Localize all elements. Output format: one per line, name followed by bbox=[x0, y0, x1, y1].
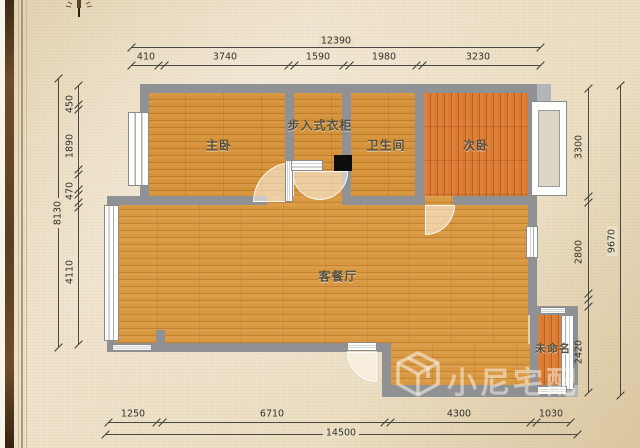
dim-line-bottom-segments bbox=[108, 422, 570, 423]
dim-top-total: 12390 bbox=[318, 36, 354, 47]
window-master-left bbox=[128, 112, 149, 186]
room-label-walk-in-closet: 步入式衣柜 bbox=[287, 117, 352, 134]
wall-bathroom-bedroom-divider bbox=[415, 84, 424, 205]
dim-left-seg-1: 450 bbox=[65, 95, 76, 113]
wall-mid-horizontal-c bbox=[453, 196, 537, 205]
bay-window-panel bbox=[538, 110, 560, 187]
dim-line-left-segments bbox=[78, 85, 79, 345]
column-block bbox=[334, 155, 352, 171]
room-label-second-bedroom: 次卧 bbox=[463, 137, 489, 154]
wall-stub-living bbox=[156, 330, 165, 352]
window-unnamed-top bbox=[540, 307, 566, 314]
door-opening-closet bbox=[291, 160, 323, 171]
dim-right-total: 9670 bbox=[607, 226, 618, 256]
window-living-left bbox=[104, 205, 119, 341]
dim-right-seg-2: 2800 bbox=[574, 240, 585, 264]
dim-top-seg-2: 3740 bbox=[213, 52, 237, 63]
dim-right-seg-1: 3300 bbox=[574, 135, 585, 159]
dim-bottom-seg-1: 1250 bbox=[121, 409, 145, 420]
entry-door-leaf bbox=[347, 342, 377, 351]
watermark-text: 小尼宅配 bbox=[447, 358, 579, 402]
dim-line-right-total bbox=[620, 85, 621, 395]
dim-line-top-total bbox=[131, 47, 540, 48]
watermark-cube-icon bbox=[393, 350, 443, 398]
dim-left-seg-2: 1890 bbox=[65, 134, 76, 158]
window-living-right bbox=[526, 226, 538, 258]
dim-top-seg-5: 3230 bbox=[466, 52, 490, 63]
window-bottom-left bbox=[112, 344, 152, 351]
wall-mid-horizontal-a bbox=[107, 196, 267, 205]
room-label-bathroom: 卫生间 bbox=[366, 137, 405, 154]
dim-bottom-total: 14500 bbox=[323, 428, 359, 439]
dim-top-seg-4: 1980 bbox=[372, 52, 396, 63]
dim-line-top-segments bbox=[131, 65, 540, 66]
dim-bottom-seg-2: 6710 bbox=[260, 409, 284, 420]
floor-plan-page: 主卧 步入式衣柜 卫生间 次卧 客餐厅 未命名 12390 410 3740 1… bbox=[0, 0, 640, 448]
dim-line-right-segments bbox=[588, 88, 589, 393]
dim-top-seg-3: 1590 bbox=[306, 52, 330, 63]
dim-left-total: 8130 bbox=[53, 198, 64, 228]
wall-mid-horizontal-b bbox=[343, 196, 425, 205]
dim-top-seg-1: 410 bbox=[137, 52, 155, 63]
door-arc-entry bbox=[347, 352, 377, 382]
room-label-unnamed: 未命名 bbox=[535, 340, 571, 356]
room-label-living-dining: 客餐厅 bbox=[318, 268, 357, 285]
dim-left-seg-4: 4110 bbox=[65, 260, 76, 284]
dim-bottom-seg-4: 1030 bbox=[539, 409, 563, 420]
compass-north-icon bbox=[64, 0, 94, 20]
room-label-master-bedroom: 主卧 bbox=[206, 137, 232, 154]
dim-bottom-seg-3: 4300 bbox=[447, 409, 471, 420]
